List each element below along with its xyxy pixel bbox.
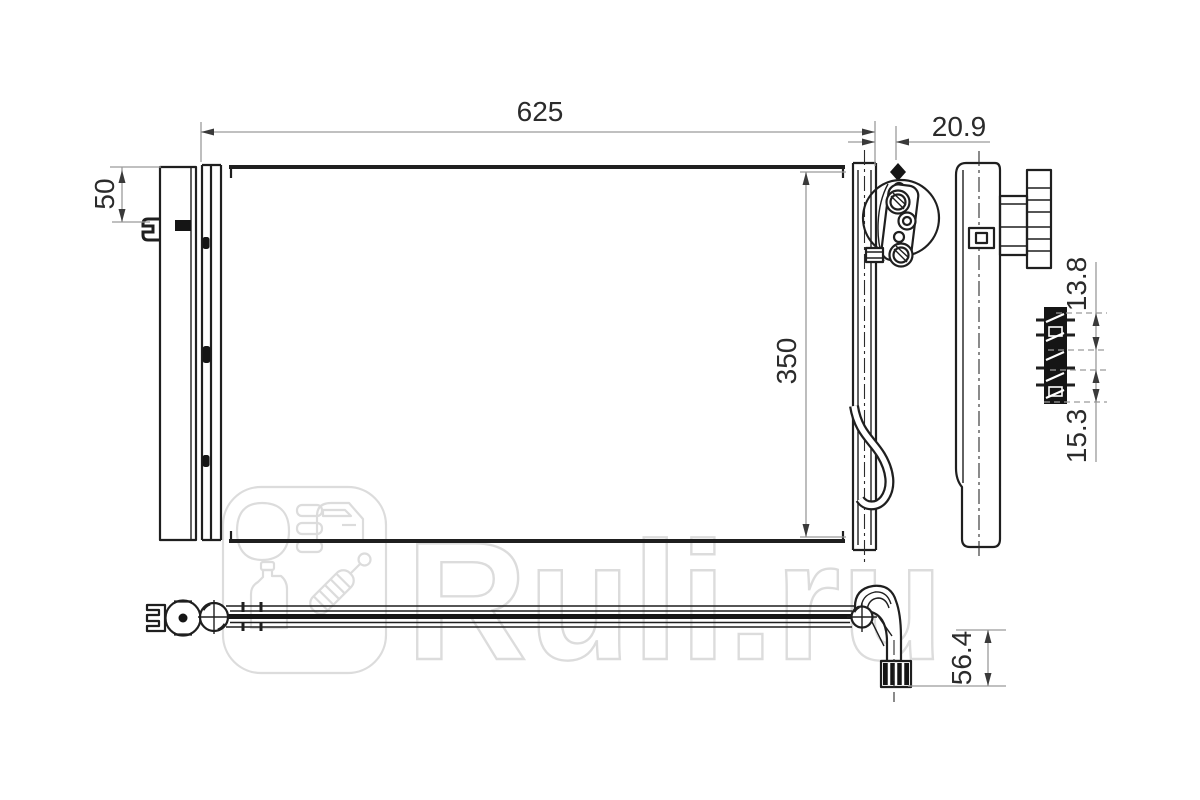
core — [229, 167, 845, 541]
technical-drawing-canvas: Ruli.ru — [0, 0, 1200, 800]
inlet-fitting — [147, 600, 230, 636]
headlight-icon — [237, 503, 322, 560]
dim-label-clip-upper: 13.8 — [1061, 257, 1092, 312]
magnified-fitting-detail — [863, 163, 939, 267]
dim-label-left-bracket: 50 — [89, 178, 120, 209]
dim-core-height: 350 — [771, 172, 846, 537]
dim-label-core-height: 350 — [771, 338, 802, 385]
square-fitting — [969, 228, 994, 248]
car-door-icon — [317, 503, 363, 541]
e-bracket — [147, 605, 165, 631]
receiver-drier-tank — [853, 150, 889, 562]
clip-detail-part — [1036, 307, 1075, 404]
shock-absorber-icon — [307, 548, 376, 617]
return-pipe-loop — [854, 406, 889, 505]
dim-left-bracket: 50 — [89, 167, 161, 222]
mounting-bracket-comb — [1000, 170, 1051, 268]
left-tank — [143, 167, 196, 540]
dim-label-outlet-drop: 56.4 — [946, 631, 977, 686]
dim-label-right-offset: 20.9 — [932, 111, 987, 142]
dim-core-width: 625 — [201, 96, 875, 166]
pipe-lines — [226, 602, 858, 631]
dim-label-clip-lower: 15.3 — [1061, 409, 1092, 464]
ruli-logo-badge — [223, 487, 386, 673]
side-view — [956, 151, 1075, 558]
front-view — [143, 150, 939, 562]
cross-bolt-left — [198, 600, 230, 634]
side-strip — [202, 165, 221, 540]
dim-right-offset: 20.9 — [848, 111, 990, 160]
watermark: Ruli.ru — [223, 487, 945, 695]
dim-label-core-width: 625 — [517, 96, 564, 127]
